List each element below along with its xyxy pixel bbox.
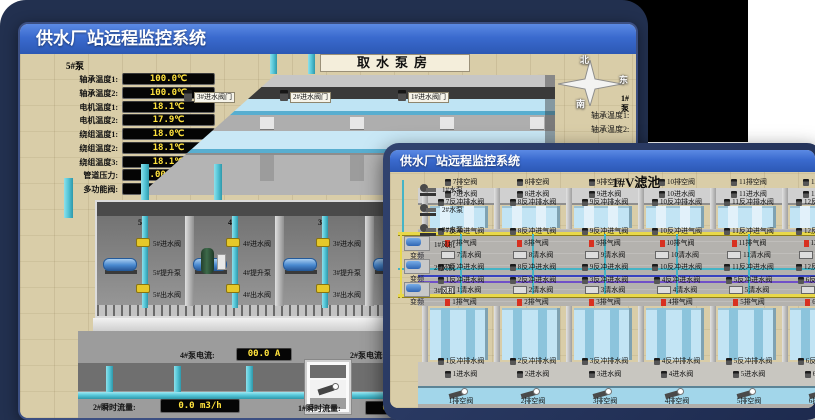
cell-trough: [538, 308, 547, 360]
bay-outlet-valve-label: 5#出水阀: [153, 290, 181, 300]
cell-trough: [441, 308, 450, 360]
valve-label: 8反冲进水阀: [518, 262, 557, 272]
intake-valve-label: 1#进水阀门: [408, 92, 449, 103]
valve-backwash_water-12[interactable]: 12反冲进水阀: [785, 262, 815, 272]
valve-label: 2排空阀: [521, 396, 546, 406]
exhaust-valve-icon[interactable]: [589, 240, 594, 247]
bay-outlet-valve-icon[interactable]: [316, 284, 330, 293]
basin-pier-shadow: [350, 155, 364, 181]
valve-backwash_drain-8[interactable]: 8反冲排水阀: [497, 197, 569, 207]
exhaust-valve-icon[interactable]: [732, 240, 737, 247]
valve-exhaust-12[interactable]: 12排气阀: [785, 238, 815, 248]
valve-label: 3进水阀: [597, 369, 622, 379]
cell-trough: [513, 308, 522, 360]
valve-label: 4排空阀: [665, 396, 690, 406]
valve-icon[interactable]: [652, 199, 658, 206]
valve-backwash_drain-2[interactable]: 2反冲排水阀: [497, 356, 569, 366]
valve-label: 9反冲进气阀: [590, 226, 629, 236]
valve-label: 10排空阀: [667, 177, 695, 187]
valve-label: 8排气阀: [524, 238, 549, 248]
valve-label: 9反冲进水阀: [590, 262, 629, 272]
valve-backwash_air-11[interactable]: 11反冲进气阀: [713, 226, 785, 236]
valve-icon[interactable]: [510, 228, 516, 235]
valve-backwash_water-10[interactable]: 10反冲进水阀: [641, 262, 713, 272]
valve-label: 2排气阀: [524, 297, 549, 307]
dosing-tank[interactable]: [201, 248, 214, 274]
valve-icon[interactable]: [510, 264, 516, 271]
water-pump-icon[interactable]: [420, 222, 440, 236]
exhaust-valve-icon[interactable]: [589, 299, 594, 306]
valve-clean-6[interactable]: 6清水阀: [785, 285, 815, 295]
bay-inlet-valve-label: 5#进水阀: [153, 239, 181, 249]
valve-backwash_air-8[interactable]: 8反冲进气阀: [497, 226, 569, 236]
bay-inlet-valve-label: 3#进水阀: [333, 239, 361, 249]
blower-label: 3#风机: [434, 286, 455, 296]
water-pump-label: 2#水泵: [442, 205, 463, 215]
valve-icon[interactable]: [652, 228, 658, 235]
current-label: 4#泵电流:: [180, 350, 215, 361]
valve-clean-11[interactable]: 11清水阀: [713, 250, 785, 260]
valve-drain-8[interactable]: 8排空阀: [497, 177, 569, 187]
valve-drain-9[interactable]: 9排空阀: [569, 177, 641, 187]
valve-label: 10反冲排水阀: [660, 197, 702, 207]
valve-backwash_drain-9[interactable]: 9反冲排水阀: [569, 197, 641, 207]
exhaust-valve-icon[interactable]: [804, 240, 809, 247]
current-label: 2#泵电流:: [350, 350, 385, 361]
clean-water-valve-icon[interactable]: [655, 251, 669, 259]
valve-icon[interactable]: [659, 179, 665, 186]
filter-cell-top: [790, 206, 815, 228]
pump-panel-label: 绕组温度3:: [24, 157, 118, 168]
valve-label: 4进水阀: [669, 369, 694, 379]
valve-backwash_drain-5[interactable]: 5反冲排水阀: [713, 356, 785, 366]
clean-water-valve-icon[interactable]: [799, 251, 813, 259]
clean-water-valve-icon[interactable]: [657, 286, 671, 294]
exhaust-valve-icon[interactable]: [660, 240, 665, 247]
valve-label: 12反冲排水阀: [804, 197, 815, 207]
intake-valve-icon[interactable]: [398, 90, 406, 101]
water-pump-label: 1#水泵: [442, 185, 463, 195]
back-window-titlebar[interactable]: 供水厂站远程监控系统: [20, 24, 636, 54]
valve-backwash_drain-12[interactable]: 12反冲排水阀: [785, 197, 815, 207]
pipe-vertical: [141, 164, 149, 202]
blower-icon[interactable]: [406, 238, 421, 246]
valve-icon[interactable]: [517, 371, 523, 378]
pump-panel-label: 绕组温度2:: [24, 143, 118, 154]
valve-icon[interactable]: [733, 371, 739, 378]
cell-streak: [680, 206, 690, 228]
valve-label: 10清水阀: [671, 250, 699, 260]
flow-meter-top-panel: [310, 365, 346, 378]
valve-label: 5反冲排水阀: [734, 356, 773, 366]
valve-icon[interactable]: [582, 277, 588, 284]
valve-icon[interactable]: [805, 371, 811, 378]
valve-label: 1排空阀: [449, 396, 474, 406]
valve-drain-12[interactable]: 12排空阀: [785, 177, 815, 187]
valve-backwash_water-3[interactable]: 3反冲进水阀: [569, 275, 641, 285]
valve-icon[interactable]: [510, 358, 516, 365]
valve-clean-3[interactable]: 3清水阀: [569, 285, 641, 295]
valve-icon[interactable]: [796, 199, 802, 206]
bay-pipe: [322, 216, 328, 308]
cell-streak: [800, 206, 810, 228]
valve-label: 3清水阀: [601, 285, 626, 295]
pipe-stub: [246, 366, 253, 394]
blower-feed-pipe: [400, 234, 402, 298]
cell-trough: [610, 308, 619, 360]
valve-backwash_drain-1[interactable]: 1反冲排水阀: [425, 356, 497, 366]
drain-valve-cap: [749, 388, 756, 395]
bay-inlet-valve-label: 4#进水阀: [243, 239, 271, 249]
compass-south-label: 南: [576, 97, 585, 110]
valve-icon[interactable]: [724, 228, 730, 235]
filter-cell-bottom: [646, 308, 704, 360]
valve-exhaust-9[interactable]: 9排气阀: [569, 238, 641, 248]
valve-inlet-1[interactable]: 1进水阀: [425, 369, 497, 379]
bay-outlet-valve-icon[interactable]: [136, 284, 150, 293]
valve-label: 7清水阀: [457, 250, 482, 260]
valve-inlet-6[interactable]: 6进水阀: [785, 369, 815, 379]
cell-trough: [754, 308, 763, 360]
filter-cell-bottom: [502, 308, 560, 360]
flow-label: 1#瞬时流量:: [298, 403, 341, 414]
bay-pump-label: 4#提升泵: [243, 268, 271, 278]
cell-streak: [464, 206, 474, 228]
pipe-vertical: [214, 164, 222, 202]
valve-inlet-2[interactable]: 2进水阀: [497, 369, 569, 379]
valve-label: 6排空阀: [809, 396, 815, 406]
valve-drain-3[interactable]: 3排空阀: [569, 396, 641, 406]
valve-label: 11反冲进气阀: [732, 226, 774, 236]
valve-label: 8反冲进气阀: [518, 226, 557, 236]
pump-body: [426, 188, 436, 192]
valve-backwash_water-2[interactable]: 2反冲进水阀: [497, 275, 569, 285]
valve-backwash_drain-11[interactable]: 11反冲排水阀: [713, 197, 785, 207]
valve-exhaust-3[interactable]: 3排气阀: [569, 297, 641, 307]
valve-label: 10反冲进气阀: [660, 226, 702, 236]
valve-icon[interactable]: [582, 358, 588, 365]
valve-label: 4清水阀: [673, 285, 698, 295]
valve-label: 9反冲排水阀: [590, 197, 629, 207]
pipe-vertical: [270, 54, 277, 74]
clean-water-valve-icon[interactable]: [729, 286, 743, 294]
blower-icon[interactable]: [406, 284, 421, 292]
valve-exhaust-10[interactable]: 10排气阀: [641, 238, 713, 248]
cell-trough: [466, 308, 475, 360]
filter-cell-bottom: [574, 308, 632, 360]
valve-backwash_water-9[interactable]: 9反冲进水阀: [569, 262, 641, 272]
valve-inlet-3[interactable]: 3进水阀: [569, 369, 641, 379]
blower-icon[interactable]: [406, 261, 421, 269]
valve-icon[interactable]: [582, 228, 588, 235]
valve-icon[interactable]: [652, 264, 658, 271]
valve-label: 11反冲进水阀: [732, 262, 774, 272]
front-window-inner: 供水厂站远程监控系统 1#V滤池 7排空阀8排空阀9排空阀10排空阀11排空阀1…: [390, 150, 815, 408]
pump-body: [426, 228, 436, 232]
valve-label: 4排气阀: [668, 297, 693, 307]
pump-panel-value: 100.0℃: [122, 73, 215, 85]
drain-valve-cap: [677, 388, 684, 395]
filter-cell-top: [718, 206, 776, 228]
cell-trough: [682, 308, 691, 360]
bay-pipe: [232, 216, 238, 308]
clean-water-valve-icon[interactable]: [585, 286, 599, 294]
pipe-vertical: [64, 178, 73, 218]
valve-icon[interactable]: [510, 199, 516, 206]
valve-inlet-4[interactable]: 4进水阀: [641, 369, 713, 379]
valve-clean-8[interactable]: 8清水阀: [497, 250, 569, 260]
valve-label: 2反冲进水阀: [518, 275, 557, 285]
valve-label: 12排空阀: [811, 177, 815, 187]
valve-clean-2[interactable]: 2清水阀: [497, 285, 569, 295]
valve-label: 1反冲进水阀: [446, 275, 485, 285]
filter-cell-bottom: [430, 308, 488, 360]
valve-label: 3反冲进水阀: [590, 275, 629, 285]
bay-outlet-valve-label: 4#出水阀: [243, 290, 271, 300]
bay-outlet-valve-icon[interactable]: [226, 284, 240, 293]
valve-exhaust-8[interactable]: 8排气阀: [497, 238, 569, 248]
valve-icon[interactable]: [438, 277, 444, 284]
pipe-stub: [174, 366, 181, 394]
valve-icon[interactable]: [589, 179, 595, 186]
valve-label: 3反冲排水阀: [590, 356, 629, 366]
valve-icon[interactable]: [798, 358, 804, 365]
tank-panel: [217, 254, 226, 270]
side-panel-label: 轴承温度1:: [591, 110, 629, 121]
valve-label: 5排气阀: [740, 297, 765, 307]
pump-panel-label: 轴承温度2:: [24, 88, 118, 99]
pump-panel-label: 电机温度2:: [24, 115, 118, 126]
valve-backwash_water-1[interactable]: 1反冲进水阀: [425, 275, 497, 285]
compass-east-label: 东: [619, 73, 628, 86]
cell-trough: [657, 308, 666, 360]
water-pump-icon[interactable]: [420, 202, 440, 216]
flow-label: 2#瞬时流量:: [93, 402, 136, 413]
valve-label: 8清水阀: [529, 250, 554, 260]
valve-inlet-5[interactable]: 5进水阀: [713, 369, 785, 379]
valve-icon[interactable]: [654, 277, 660, 284]
valve-clean-12[interactable]: 12清水阀: [785, 250, 815, 260]
filter-cell-bottom: [790, 308, 815, 360]
valve-icon[interactable]: [445, 371, 451, 378]
valve-exhaust-6[interactable]: 6排气阀: [785, 297, 815, 307]
exhaust-valve-icon[interactable]: [517, 299, 522, 306]
valve-icon[interactable]: [724, 199, 730, 206]
valve-backwash_air-12[interactable]: 12反冲进气阀: [785, 226, 815, 236]
valve-icon[interactable]: [726, 358, 732, 365]
front-window: 供水厂站远程监控系统 1#V滤池 7排空阀8排空阀9排空阀10排空阀11排空阀1…: [383, 143, 815, 420]
clean-water-valve-icon[interactable]: [585, 251, 599, 259]
cell-streak: [608, 206, 618, 228]
valve-icon[interactable]: [731, 179, 737, 186]
valve-label: 4反冲排水阀: [662, 356, 701, 366]
cell-streak: [728, 206, 738, 228]
valve-icon[interactable]: [654, 358, 660, 365]
filter-cell-top: [646, 206, 704, 228]
pump-panel-label: 电机温度1:: [24, 102, 118, 113]
room-title-plaque: 取水泵房: [320, 54, 470, 72]
valve-label: 1进水阀: [453, 369, 478, 379]
intake-valve-icon[interactable]: [280, 90, 288, 101]
bay-pump-label: 3#提升泵: [333, 268, 361, 278]
valve-icon[interactable]: [438, 358, 444, 365]
valve-label: 1反冲排水阀: [446, 356, 485, 366]
flow-meter-dot: [332, 383, 339, 390]
valve-label: 4反冲进水阀: [662, 275, 701, 285]
intake-valve-icon[interactable]: [184, 90, 192, 101]
valve-label: 5排空阀: [737, 396, 762, 406]
bay-outlet-valve-label: 3#出水阀: [333, 290, 361, 300]
filter-cell-top: [574, 206, 632, 228]
basin-pier: [350, 117, 364, 129]
exhaust-valve-icon[interactable]: [517, 240, 522, 247]
valve-label: 12排气阀: [811, 238, 815, 248]
valve-icon[interactable]: [582, 199, 588, 206]
valve-exhaust-4[interactable]: 4排气阀: [641, 297, 713, 307]
valve-clean-9[interactable]: 9清水阀: [569, 250, 641, 260]
valve-backwash_water-4[interactable]: 4反冲进水阀: [641, 275, 713, 285]
cell-streak: [512, 206, 522, 228]
valve-label: 11反冲排水阀: [732, 197, 774, 207]
basin-pier: [530, 117, 544, 129]
valve-label: 2清水阀: [529, 285, 554, 295]
valve-backwash_drain-3[interactable]: 3反冲排水阀: [569, 356, 641, 366]
compass-icon: [558, 60, 622, 106]
valve-icon[interactable]: [582, 264, 588, 271]
valve-backwash_water-11[interactable]: 11反冲进水阀: [713, 262, 785, 272]
basin-pier-shadow: [260, 155, 274, 181]
valve-label: 5清水阀: [745, 285, 770, 295]
cell-streak: [656, 206, 666, 228]
valve-label: 10排气阀: [667, 238, 695, 248]
front-window-titlebar[interactable]: 供水厂站远程监控系统: [390, 150, 815, 172]
valve-label: 2反冲排水阀: [518, 356, 557, 366]
flow-value: 0.0 m3/h: [160, 399, 240, 413]
bay-pump-icon[interactable]: [283, 258, 317, 271]
valve-label: 6反冲进水阀: [806, 275, 815, 285]
valve-label: 2进水阀: [525, 369, 550, 379]
pump-panel-label: 轴承温度1:: [24, 74, 118, 85]
pump-base: [420, 193, 436, 196]
bay-pump-icon[interactable]: [103, 258, 137, 271]
valve-exhaust-11[interactable]: 11排气阀: [713, 238, 785, 248]
intake-valve-label: 2#进水阀门: [290, 92, 331, 103]
exhaust-valve-icon[interactable]: [805, 299, 810, 306]
cell-trough: [729, 308, 738, 360]
blower-label: 2#风机: [434, 263, 455, 273]
valve-exhaust-5[interactable]: 5排气阀: [713, 297, 785, 307]
drain-valve-cap: [605, 388, 612, 395]
pump-panel-label: 绕组温度1:: [24, 129, 118, 140]
valve-icon[interactable]: [724, 264, 730, 271]
valve-backwash_air-10[interactable]: 10反冲进气阀: [641, 226, 713, 236]
clean-water-valve-icon[interactable]: [441, 251, 455, 259]
cell-streak: [584, 206, 594, 228]
valve-label: 12反冲进水阀: [804, 262, 815, 272]
exhaust-valve-icon[interactable]: [733, 299, 738, 306]
filter-cell-top: [502, 206, 560, 228]
bay-pump-label: 5#提升泵: [153, 268, 181, 278]
valve-backwash_water-5[interactable]: 5反冲进水阀: [713, 275, 785, 285]
pump-feed-pipe: [402, 180, 404, 232]
valve-icon[interactable]: [589, 371, 595, 378]
pump-panel-header: 5#泵: [66, 59, 84, 72]
blower-sub-label: 变频: [410, 297, 424, 307]
valve-clean-5[interactable]: 5清水阀: [713, 285, 785, 295]
valve-clean-10[interactable]: 10清水阀: [641, 250, 713, 260]
clean-water-valve-icon[interactable]: [727, 251, 741, 259]
valve-label: 9排空阀: [597, 177, 622, 187]
exhaust-valve-icon[interactable]: [445, 299, 450, 306]
pump-panel-value: 17.9℃: [122, 114, 215, 126]
filter-pool-scene: 1#V滤池 7排空阀8排空阀9排空阀10排空阀11排空阀12排空阀7进水阀8进水…: [390, 172, 815, 408]
valve-backwash_drain-4[interactable]: 4反冲排水阀: [641, 356, 713, 366]
valve-label: 9排气阀: [596, 238, 621, 248]
drain-valve-cap: [533, 388, 540, 395]
exhaust-valve-icon[interactable]: [661, 299, 666, 306]
valve-icon[interactable]: [798, 277, 804, 284]
valve-exhaust-1[interactable]: 1排气阀: [425, 297, 497, 307]
valve-drain-4[interactable]: 4排空阀: [641, 396, 713, 406]
valve-icon[interactable]: [796, 228, 802, 235]
valve-label: 8排空阀: [525, 177, 550, 187]
valve-label: 9清水阀: [601, 250, 626, 260]
valve-drain-2[interactable]: 2排空阀: [497, 396, 569, 406]
valve-icon[interactable]: [803, 179, 809, 186]
valve-backwash_drain-10[interactable]: 10反冲排水阀: [641, 197, 713, 207]
pump-base: [420, 213, 436, 216]
valve-drain-6[interactable]: 6排空阀: [785, 396, 815, 406]
valve-backwash_water-8[interactable]: 8反冲进水阀: [497, 262, 569, 272]
valve-backwash_air-9[interactable]: 9反冲进气阀: [569, 226, 641, 236]
cell-streak: [752, 206, 762, 228]
valve-drain-5[interactable]: 5排空阀: [713, 396, 785, 406]
valve-icon[interactable]: [510, 277, 516, 284]
valve-label: 3排空阀: [593, 396, 618, 406]
pump-body: [426, 208, 436, 212]
bay-inlet-valve-icon[interactable]: [136, 238, 150, 247]
bay-inlet-valve-icon[interactable]: [316, 238, 330, 247]
valve-icon[interactable]: [796, 264, 802, 271]
water-pump-label: 3#水泵: [442, 225, 463, 235]
valve-drain-1[interactable]: 1排空阀: [425, 396, 497, 406]
valve-exhaust-2[interactable]: 2排气阀: [497, 297, 569, 307]
valve-clean-7[interactable]: 7清水阀: [425, 250, 497, 260]
water-pump-icon[interactable]: [420, 182, 440, 196]
valve-label: 11排空阀: [739, 177, 767, 187]
valve-clean-4[interactable]: 4清水阀: [641, 285, 713, 295]
bay-pipe: [142, 216, 148, 308]
intake-valve-label: 3#进水阀门: [194, 92, 235, 103]
bay-inlet-valve-icon[interactable]: [226, 238, 240, 247]
valve-label: 7排气阀: [452, 238, 477, 248]
current-value: 00.0 A: [236, 348, 292, 361]
valve-label: 1清水阀: [457, 285, 482, 295]
valve-drain-11[interactable]: 11排空阀: [713, 177, 785, 187]
valve-icon[interactable]: [517, 179, 523, 186]
valve-backwash_drain-6[interactable]: 6反冲排水阀: [785, 356, 815, 366]
clean-water-valve-icon[interactable]: [513, 251, 527, 259]
valve-icon[interactable]: [726, 277, 732, 284]
clean-water-valve-icon[interactable]: [801, 286, 815, 294]
basin-pier: [440, 117, 454, 129]
valve-drain-10[interactable]: 10排空阀: [641, 177, 713, 187]
valve-backwash_water-6[interactable]: 6反冲进水阀: [785, 275, 815, 285]
valve-icon[interactable]: [661, 371, 667, 378]
pipe-vertical: [308, 54, 315, 74]
clean-water-valve-icon[interactable]: [513, 286, 527, 294]
valve-label: 11排气阀: [739, 238, 767, 248]
